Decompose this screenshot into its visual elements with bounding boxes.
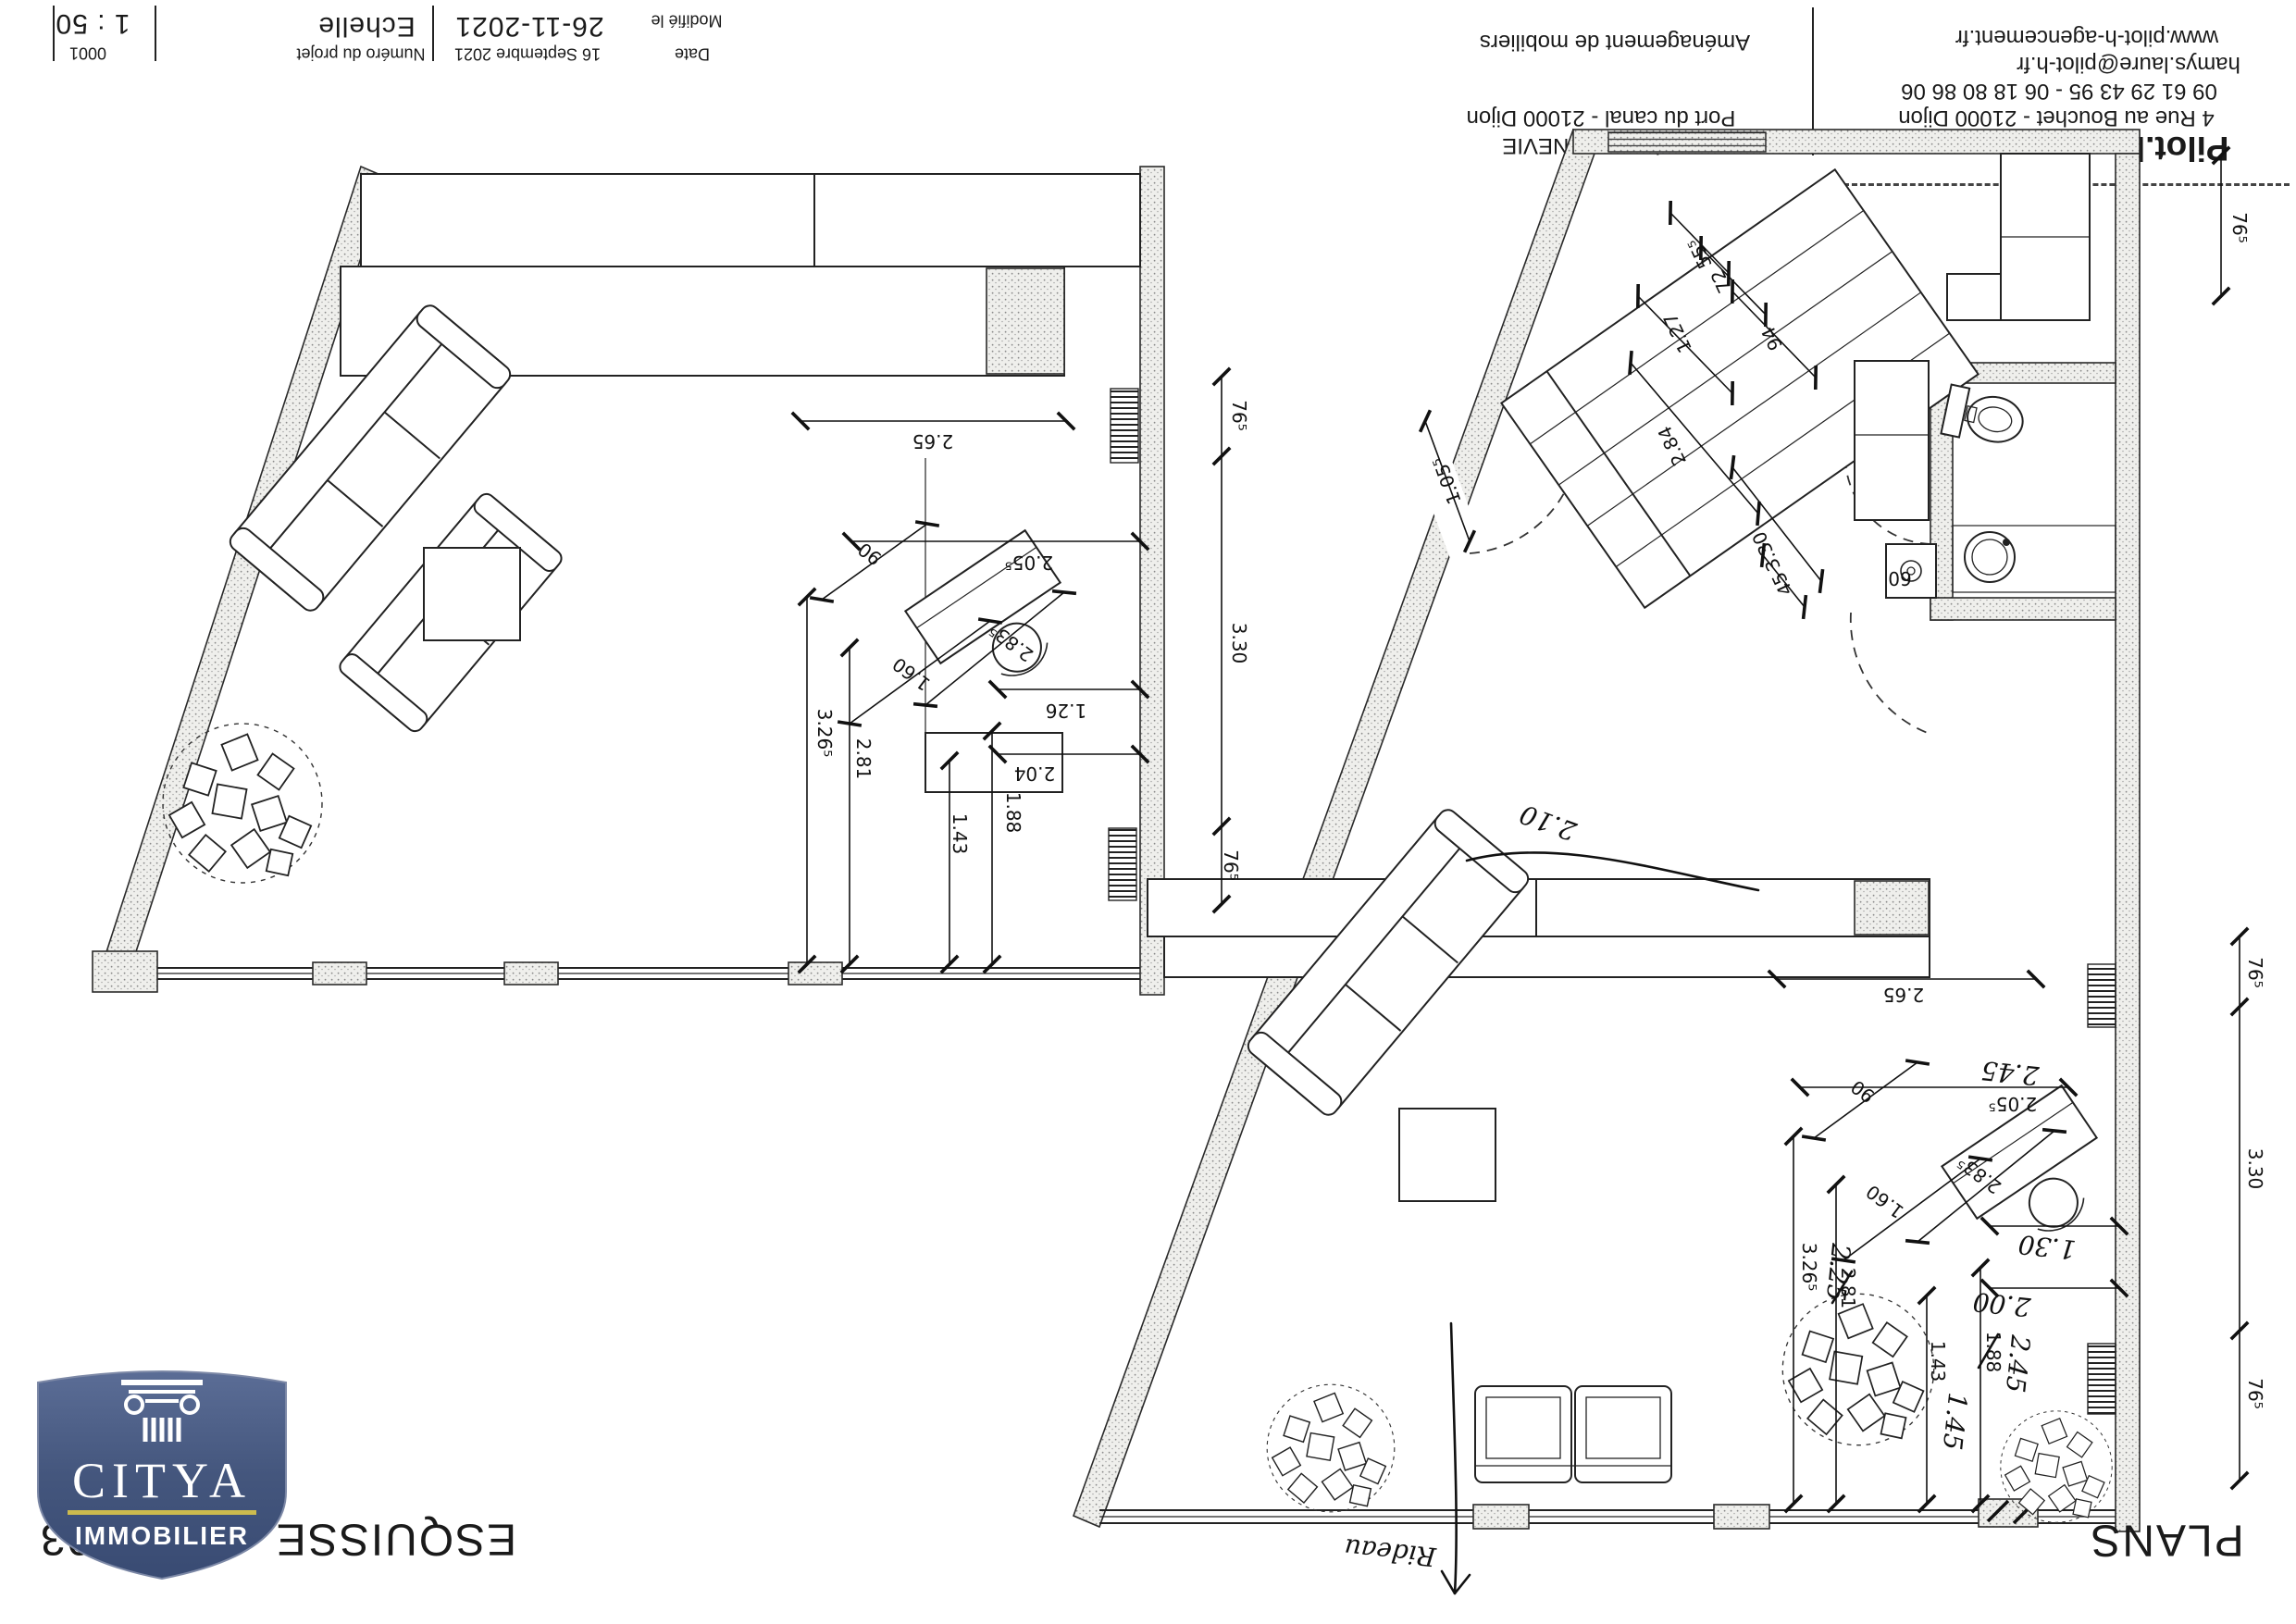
dimension-label: 3.30: [1747, 528, 1785, 576]
dimension-label: 76⁵: [2244, 957, 2266, 987]
dim-tick: [1052, 591, 1076, 594]
handwritten-note: 2.45: [1980, 1055, 2041, 1091]
handwritten-note: 2.45: [2000, 1333, 2036, 1394]
handwritten-note: Rideau: [1343, 1532, 1438, 1572]
dim-tick: [913, 704, 937, 707]
dimension-label: 76⁵: [1228, 400, 1250, 430]
dimension-label: 3.30: [1228, 623, 1250, 664]
left-plan: [93, 167, 1164, 995]
dimension-label: 1.43: [1927, 1341, 1949, 1382]
dim-tick: [1757, 502, 1759, 526]
floor-plan-drawing: 2.6576⁵3.3076⁵2.05⁵902.83⁵1.601.262.043.…: [0, 0, 2296, 1624]
dimension-label: 76⁵: [2228, 212, 2251, 242]
dim-tick: [1905, 1241, 1930, 1244]
dim-tick: [1804, 595, 1806, 619]
dimension-label: 1.26: [1046, 700, 1087, 722]
dimension-label: 45: [1767, 568, 1797, 599]
dimension-label: 2.65: [1883, 984, 1925, 1006]
dim-tick: [810, 598, 834, 601]
citya-logo: CITYA IMMOBILIER: [31, 1353, 293, 1586]
dimension-label: 1.60: [888, 653, 935, 696]
dim-tick: [915, 522, 939, 526]
handwritten-note: 1.30: [2017, 1229, 2077, 1265]
dimension-label: 3.30: [2244, 1148, 2266, 1190]
dimension-label: 76⁵: [1220, 849, 1242, 880]
dim-tick: [1819, 569, 1822, 593]
dimension-label: 1.43: [949, 813, 971, 855]
dimension-label: 1.88: [1982, 1332, 2004, 1373]
dimension-label: 3.26⁵: [1798, 1243, 1820, 1292]
dimension-label: 2.65: [912, 430, 954, 452]
dimension-label: 90: [1846, 1075, 1879, 1107]
dim-tick: [1630, 351, 1632, 375]
dimension-label: 60: [1888, 567, 1911, 589]
dimension-label: 1.60: [1862, 1181, 1908, 1223]
logo-brand: CITYA: [72, 1453, 252, 1508]
dimension-label: 2.81: [852, 738, 875, 780]
logo-division: IMMOBILIER: [75, 1521, 249, 1550]
dimension-label: 3.26⁵: [813, 709, 836, 758]
plans-label: PLANS: [2089, 1515, 2243, 1566]
dimension-label: 90: [853, 538, 886, 569]
dim-tick: [1802, 1136, 1826, 1140]
dim-tick: [1905, 1060, 1930, 1064]
dimension-label: 2.05⁵: [1005, 552, 1054, 574]
handwritten-note: 2.10: [1516, 799, 1582, 848]
scanned-plan-sheet: 1 : 50 0001 Echelle Numéro du projet 26-…: [0, 0, 2296, 1624]
handwritten-note: 2.00: [1971, 1286, 2032, 1322]
dimension-label: 76⁵: [2244, 1378, 2266, 1408]
dimension-label: 1.88: [1002, 792, 1024, 834]
logo-accent-rule: [68, 1510, 256, 1515]
dimension-label: 2.05⁵: [1989, 1093, 2038, 1115]
handwritten-note: 2.25: [1820, 1241, 1856, 1302]
dimension-label: 2.04: [1014, 762, 1056, 785]
handwritten-note: 1.45: [1937, 1391, 1973, 1451]
left-plan-furniture: [163, 174, 1140, 900]
